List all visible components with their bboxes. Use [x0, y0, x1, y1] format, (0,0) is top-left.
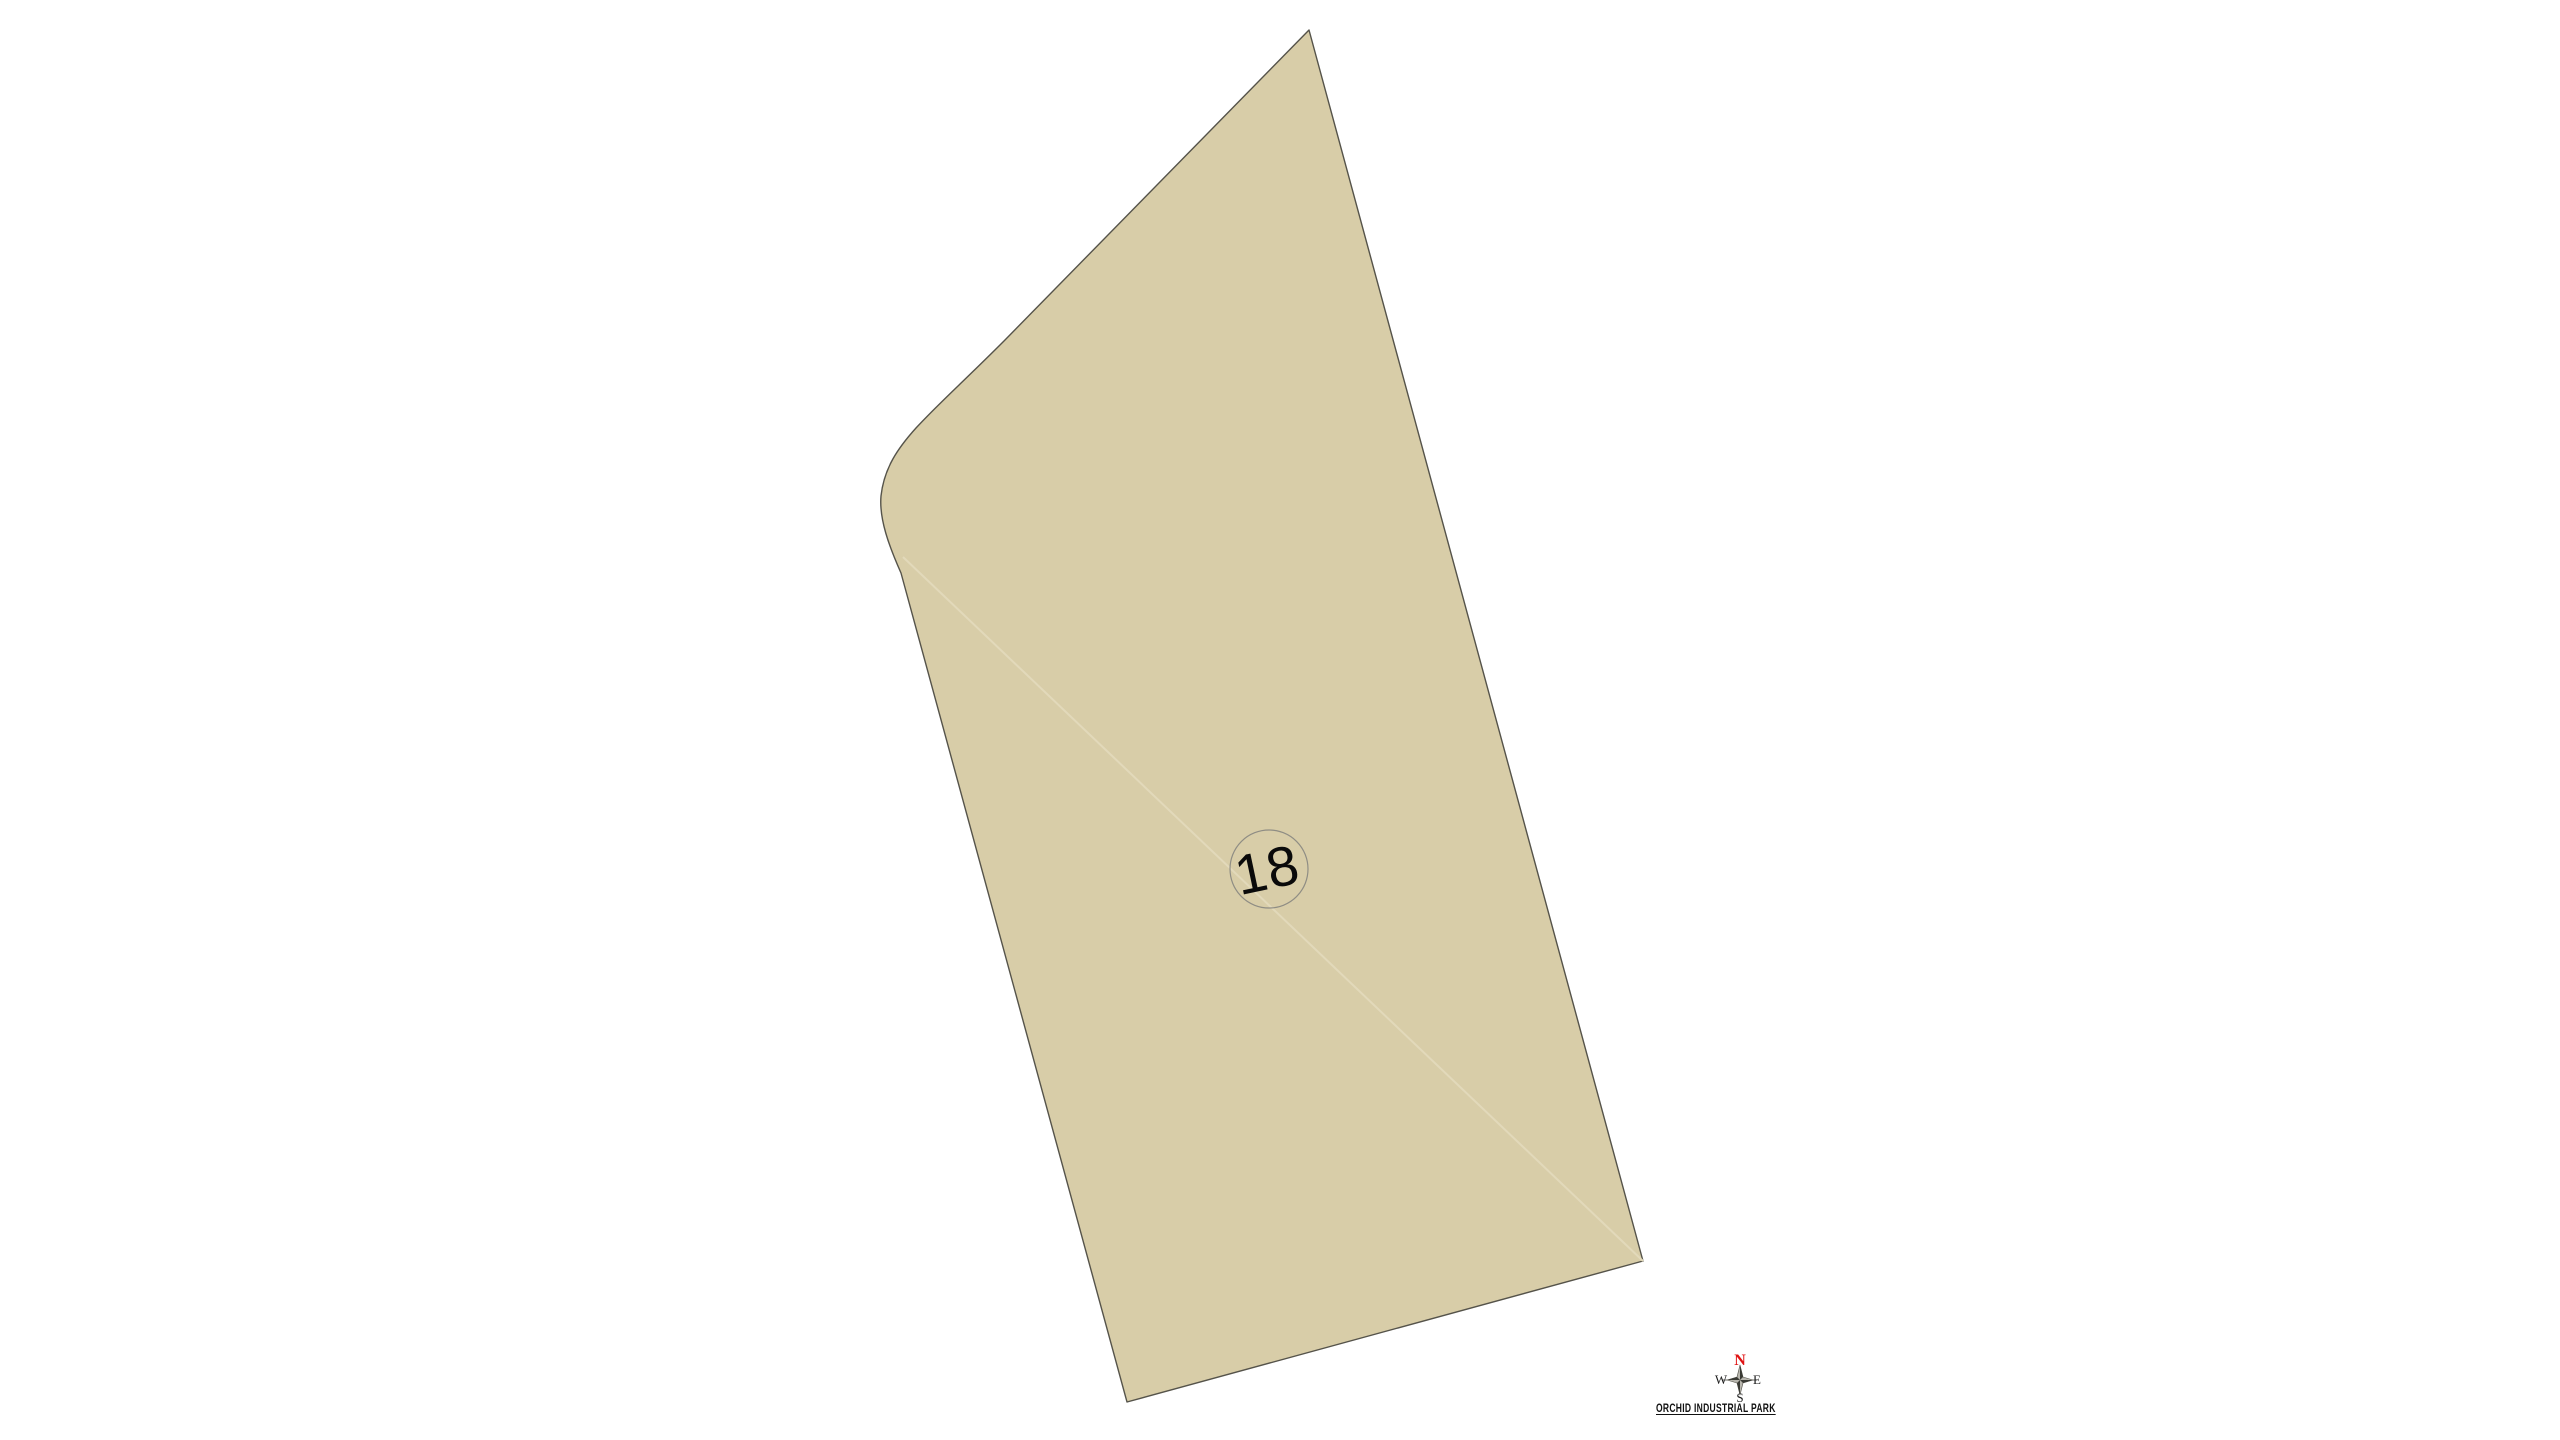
compass-north-label: N — [1734, 1352, 1746, 1369]
compass-rose: N W E S — [1715, 1352, 1761, 1405]
park-title: ORCHID INDUSTRIAL PARK — [1656, 1403, 1776, 1415]
parcel-18-shape[interactable] — [881, 30, 1643, 1402]
parcel-map-svg: 18 N W E S — [0, 0, 2560, 1440]
parcel-number-text[interactable]: 18 — [1229, 832, 1305, 907]
compass-west-label: W — [1715, 1372, 1728, 1387]
parcel-label-group: 18 — [1229, 830, 1308, 908]
compass-east-label: E — [1753, 1372, 1761, 1387]
plat-map-canvas: 18 N W E S ORCHID INDUSTRIAL PARK — [0, 0, 2560, 1440]
